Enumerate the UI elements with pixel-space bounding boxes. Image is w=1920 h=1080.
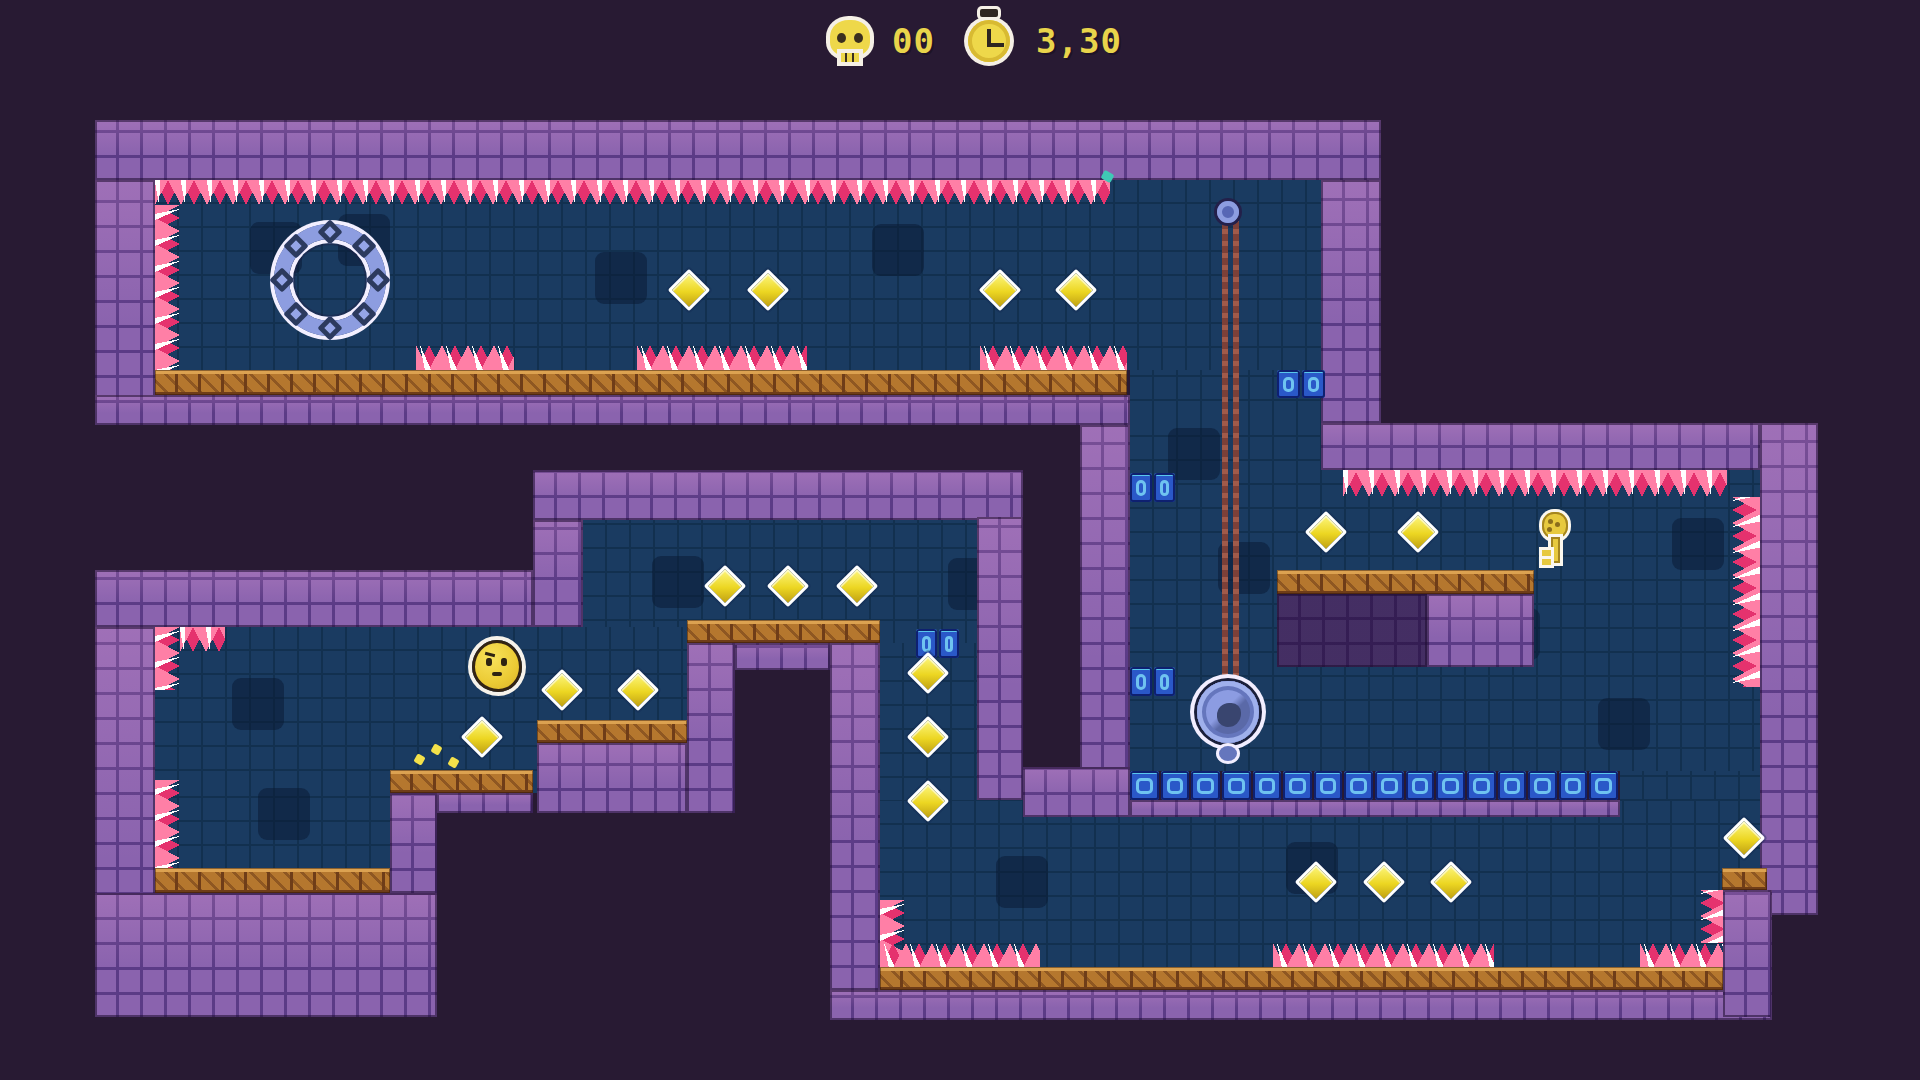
spikes-down xyxy=(155,180,1110,205)
spikes-down xyxy=(1343,470,1727,497)
key-head-icon xyxy=(1542,512,1568,539)
wall-block xyxy=(95,570,533,627)
blue-block xyxy=(1375,771,1404,800)
player-body xyxy=(472,640,522,692)
spikes-up xyxy=(1273,943,1494,967)
blue-block xyxy=(1130,667,1152,696)
blue-block xyxy=(1467,771,1496,800)
player-eye-icon xyxy=(486,658,492,666)
wall-block xyxy=(390,793,437,893)
decor-square xyxy=(1168,428,1220,480)
spikes-down xyxy=(180,627,225,652)
spikes-up xyxy=(880,943,1040,967)
gear-ring xyxy=(274,224,386,336)
wall-block xyxy=(830,990,1772,1020)
wall-block xyxy=(1760,423,1818,915)
blue-block xyxy=(1222,771,1251,800)
player-character xyxy=(468,630,526,694)
spikes-right xyxy=(155,205,180,370)
key-stem-icon xyxy=(1551,537,1560,563)
blue-block xyxy=(1344,771,1373,800)
wall-block xyxy=(687,643,735,813)
wall-block xyxy=(1321,423,1760,470)
wall-block xyxy=(1321,180,1381,423)
blue-block xyxy=(1191,771,1220,800)
spikes-right xyxy=(155,627,180,690)
blue-block xyxy=(1559,771,1588,800)
chain-strand xyxy=(1233,212,1239,678)
wall-block xyxy=(1080,425,1130,817)
wood-platform xyxy=(537,720,687,743)
wall-block xyxy=(1723,890,1772,1017)
pendulum-ball-knob xyxy=(1219,746,1237,761)
wall-block xyxy=(830,643,880,990)
decor-square xyxy=(1672,518,1724,570)
wood-platform xyxy=(155,868,390,893)
stopwatch-icon xyxy=(968,20,1010,62)
wood-platform xyxy=(687,620,880,643)
decor-square xyxy=(258,788,310,840)
chain-pivot-icon xyxy=(1217,201,1239,223)
blue-block xyxy=(1498,771,1527,800)
key-dot-icon xyxy=(1548,519,1553,524)
spikes-up xyxy=(1640,943,1723,967)
wall-block xyxy=(95,120,1381,180)
wall-block xyxy=(95,180,155,425)
decor-square xyxy=(595,252,647,304)
wood-platform xyxy=(390,770,533,793)
player-mouth-icon xyxy=(492,672,502,676)
spikes-left xyxy=(1732,497,1760,687)
pendulum-ball xyxy=(1197,681,1259,743)
player-eye-icon xyxy=(501,658,507,666)
wood-platform xyxy=(155,370,1127,395)
blue-block xyxy=(1130,771,1159,800)
wall-block xyxy=(977,517,1023,800)
wall-block xyxy=(1130,800,1620,817)
death-count: 00 xyxy=(892,24,935,58)
wall-block xyxy=(735,643,830,670)
blue-block xyxy=(1436,771,1465,800)
wall-block xyxy=(537,743,687,813)
wall-block xyxy=(95,893,437,1017)
timer-value: 3,30 xyxy=(1036,24,1122,58)
decor-square xyxy=(652,556,704,608)
spikes-up xyxy=(980,345,1127,370)
blue-block xyxy=(1314,771,1343,800)
decor-square xyxy=(232,678,284,730)
blue-block xyxy=(1589,771,1618,800)
wall-block xyxy=(1023,767,1130,817)
wood-platform xyxy=(880,967,1723,990)
spikes-left xyxy=(1700,890,1723,943)
blue-block xyxy=(1528,771,1557,800)
blue-block xyxy=(1253,771,1282,800)
game-viewport[interactable]: 00 3,30 xyxy=(0,0,1920,1080)
blue-block xyxy=(1154,667,1176,696)
spikes-up xyxy=(416,345,514,370)
blue-block xyxy=(1154,473,1176,502)
spikes-right xyxy=(155,780,180,868)
chain-strand xyxy=(1222,212,1228,678)
wall-block xyxy=(437,793,533,813)
blue-block xyxy=(1302,370,1325,398)
decor-square xyxy=(872,224,924,276)
blue-block xyxy=(1161,771,1190,800)
blue-block xyxy=(1277,370,1300,398)
key-tooth-icon xyxy=(1542,559,1551,565)
wall-block xyxy=(533,470,1023,520)
blue-block xyxy=(939,629,960,658)
blue-block xyxy=(1130,473,1152,502)
decor-square xyxy=(1598,698,1650,750)
spikes-up xyxy=(637,345,807,370)
wall-block xyxy=(533,520,583,627)
wood-platform xyxy=(1277,570,1534,594)
key-item xyxy=(1536,512,1574,570)
key-tooth-icon xyxy=(1542,550,1551,556)
wall-block-dark xyxy=(1277,594,1427,667)
wall-block xyxy=(95,395,1130,425)
blue-block xyxy=(1283,771,1312,800)
wall-block xyxy=(1427,594,1534,667)
skull-icon xyxy=(830,20,870,56)
blue-block xyxy=(1406,771,1435,800)
decor-square xyxy=(996,856,1048,908)
wood-platform xyxy=(1722,868,1767,890)
